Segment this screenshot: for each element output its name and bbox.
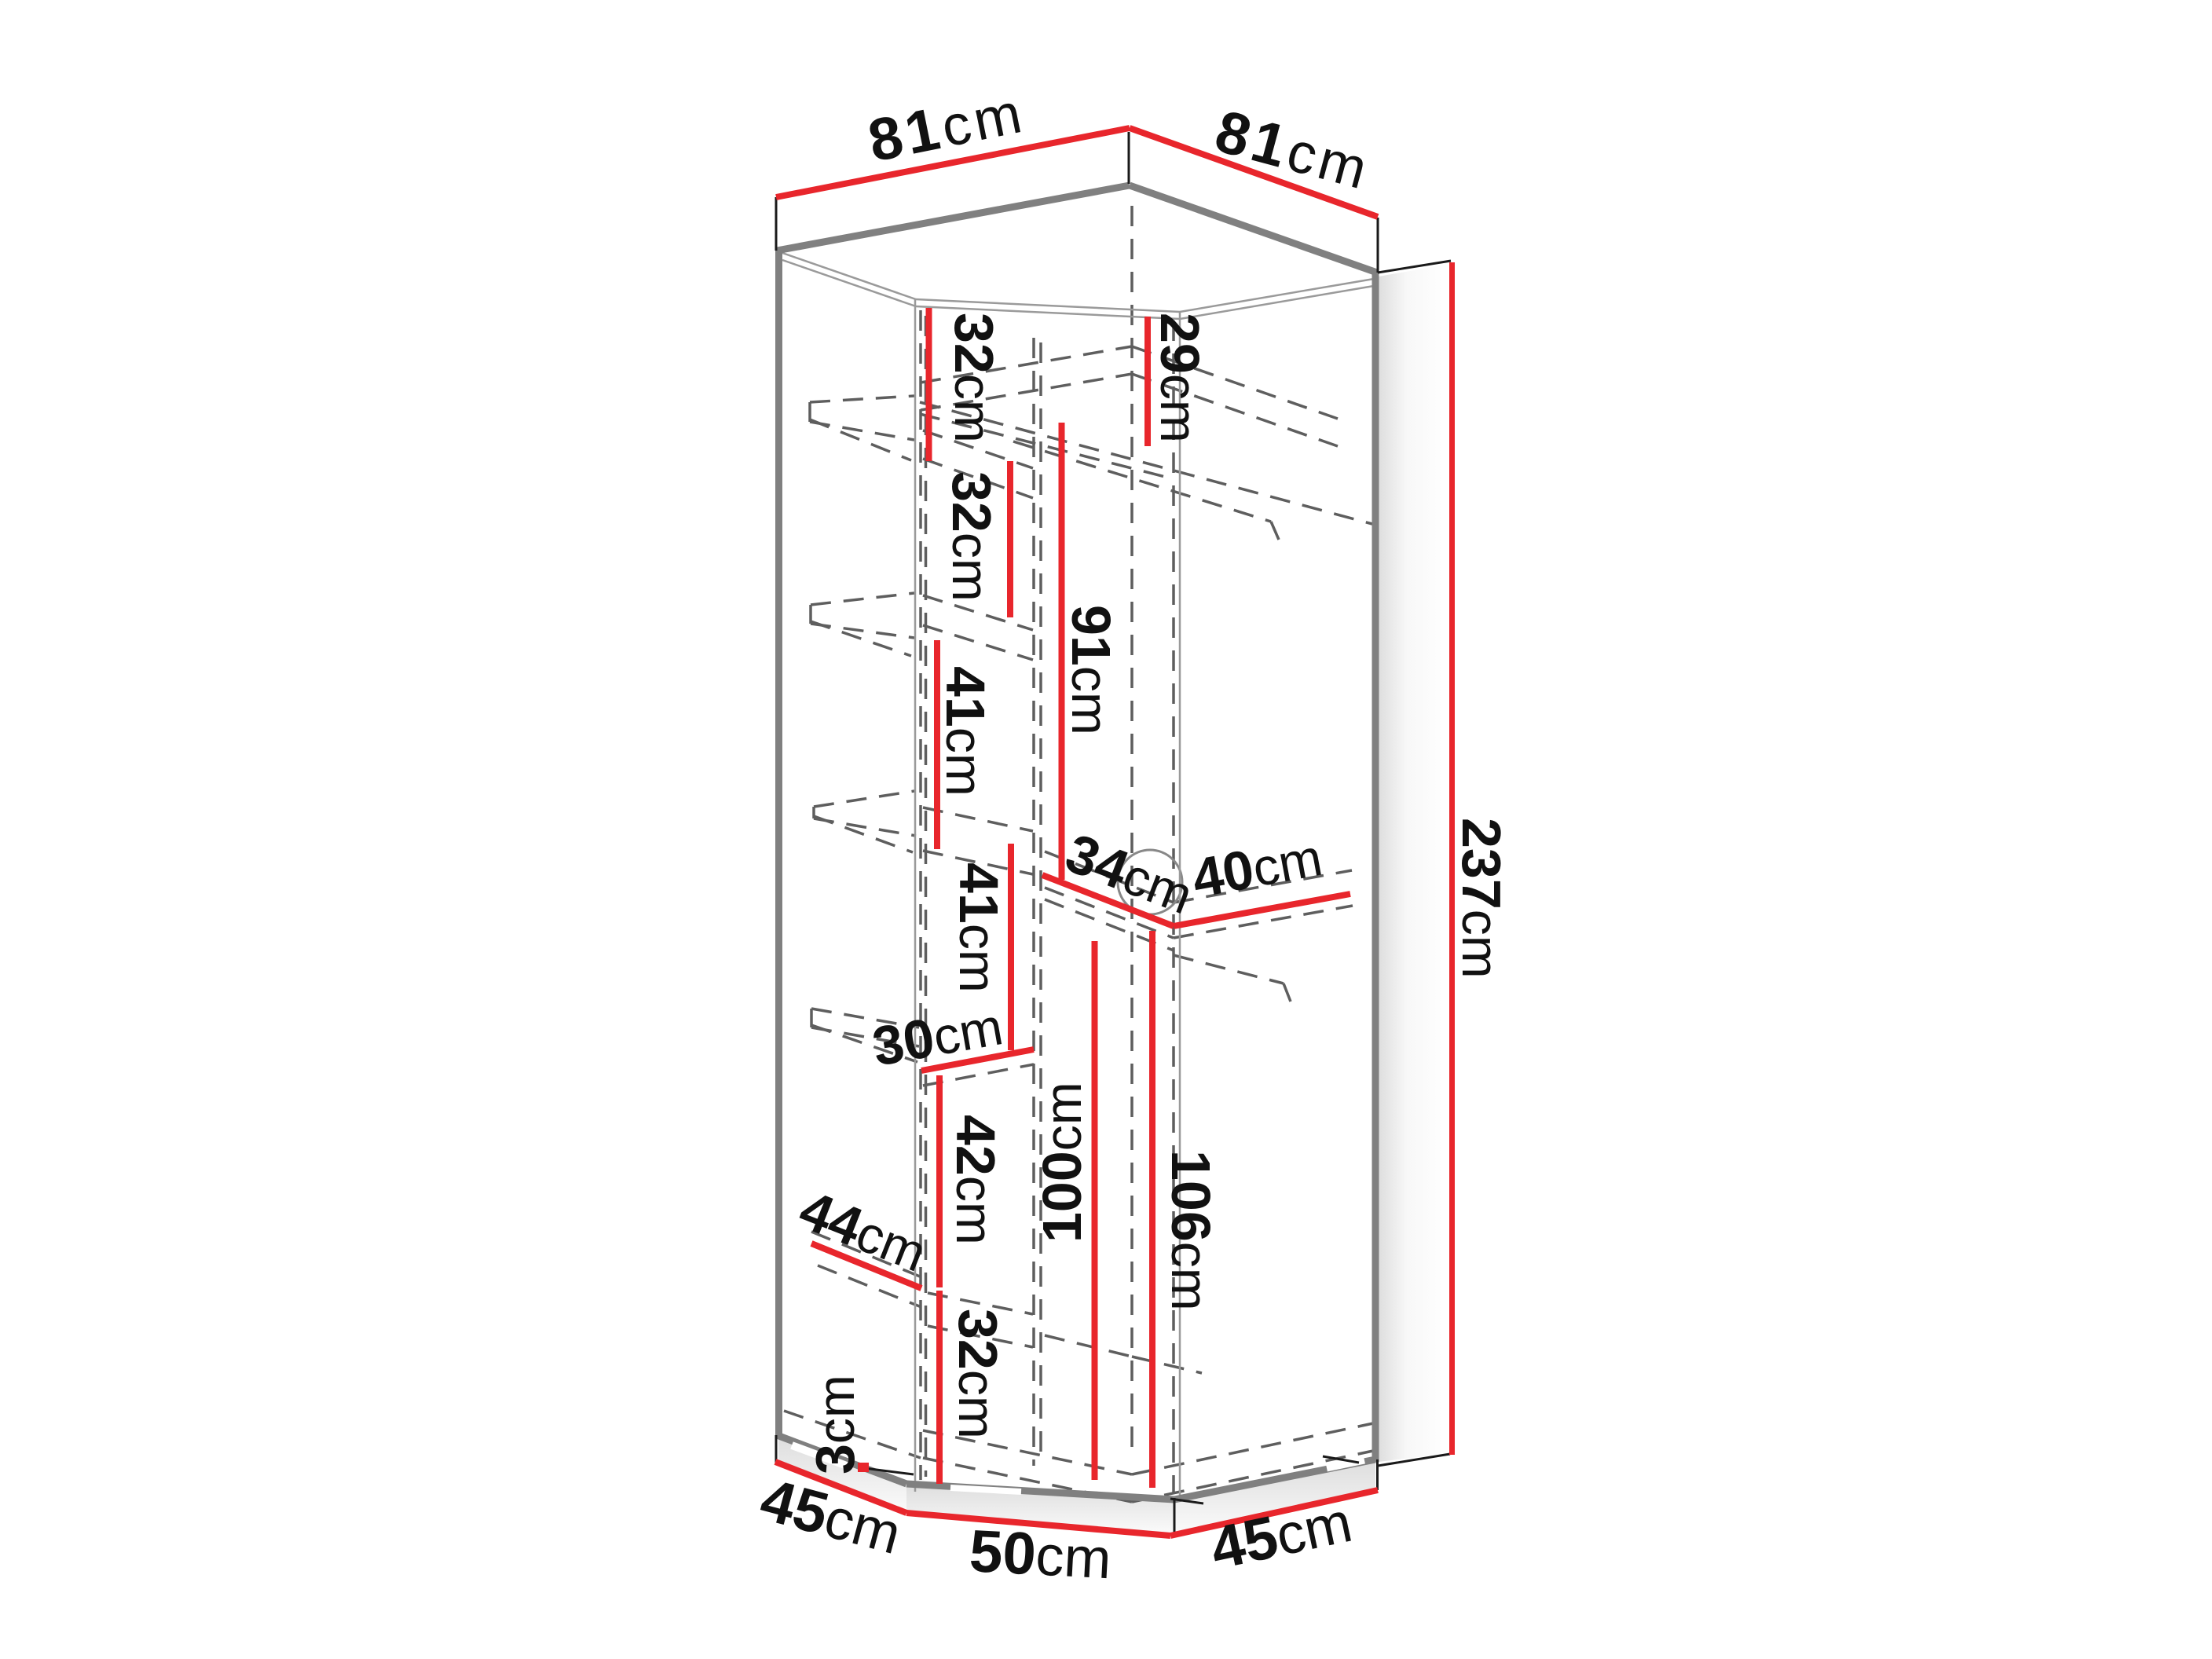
svg-text:237cm: 237cm xyxy=(1451,818,1512,979)
svg-text:91cm: 91cm xyxy=(1060,605,1122,735)
svg-text:29cm: 29cm xyxy=(1149,313,1210,443)
svg-text:42cm: 42cm xyxy=(945,1115,1006,1245)
svg-text:32cm: 32cm xyxy=(941,471,1002,602)
svg-text:3cm: 3cm xyxy=(804,1375,866,1474)
svg-text:32cm: 32cm xyxy=(943,313,1005,443)
svg-text:41cm: 41cm xyxy=(948,862,1009,993)
svg-text:41cm: 41cm xyxy=(935,666,996,797)
svg-text:50cm: 50cm xyxy=(968,1518,1113,1591)
svg-text:106cm: 106cm xyxy=(1160,1150,1221,1311)
svg-text:32cm: 32cm xyxy=(947,1309,1009,1439)
svg-text:100cm: 100cm xyxy=(1031,1082,1093,1243)
